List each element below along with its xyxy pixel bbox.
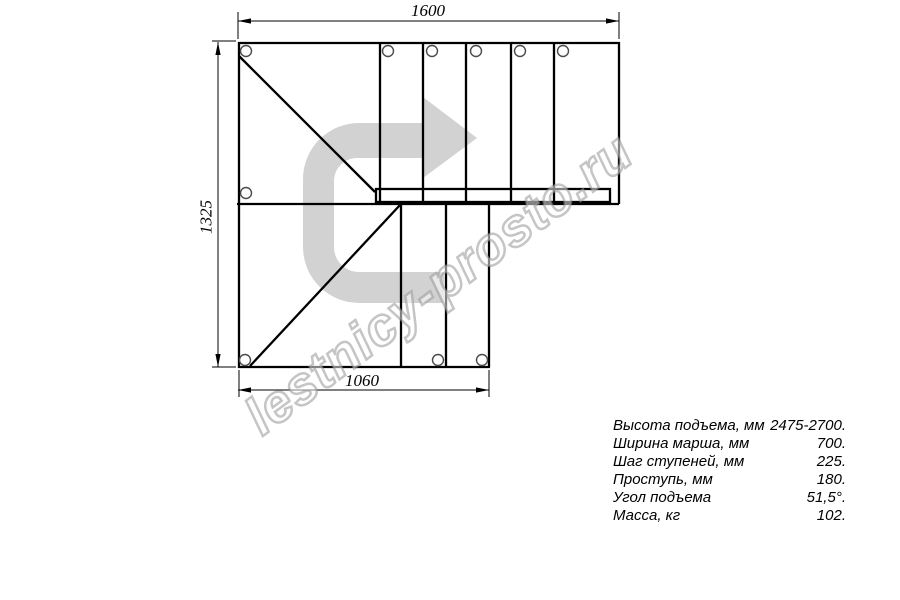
dim-arrowhead-icon	[215, 42, 220, 55]
spec-row: Угол подъема 51,5°.	[613, 489, 846, 507]
spec-value: 2475-2700.	[770, 417, 846, 435]
mounting-hole-icon	[383, 46, 394, 57]
dim-arrowhead-icon	[238, 18, 251, 23]
stair-plan-page: 1600 1325	[0, 0, 900, 600]
spec-value: 180.	[817, 471, 846, 489]
spec-value: 700.	[817, 435, 846, 453]
mounting-holes	[240, 46, 569, 366]
spec-value: 102.	[817, 507, 846, 525]
dim-left-label: 1325	[197, 200, 216, 234]
mounting-hole-icon	[241, 188, 252, 199]
spec-label: Шаг ступеней, мм	[613, 453, 744, 471]
spec-row: Масса, кг 102.	[613, 507, 846, 525]
dimension-top: 1600	[238, 1, 619, 39]
spec-label: Проступь, мм	[613, 471, 713, 489]
direction-arrow-icon	[303, 97, 477, 303]
spec-row: Проступь, мм 180.	[613, 471, 846, 489]
spec-table: Высота подъема, мм 2475-2700. Ширина мар…	[613, 417, 846, 525]
spec-value: 225.	[817, 453, 846, 471]
spec-label: Высота подъема, мм	[613, 417, 765, 435]
plan-outline	[237, 42, 619, 368]
spec-label: Ширина марша, мм	[613, 435, 749, 453]
spec-label: Угол подъема	[613, 489, 711, 507]
mounting-hole-icon	[433, 355, 444, 366]
mounting-hole-icon	[515, 46, 526, 57]
mounting-hole-icon	[558, 46, 569, 57]
spec-row: Шаг ступеней, мм 225.	[613, 453, 846, 471]
dim-bottom-label: 1060	[345, 371, 380, 390]
spec-label: Масса, кг	[613, 507, 680, 525]
dimension-left: 1325	[197, 41, 237, 367]
mounting-hole-icon	[471, 46, 482, 57]
mounting-hole-icon	[240, 355, 251, 366]
mounting-hole-icon	[241, 46, 252, 57]
dimension-bottom: 1060	[238, 370, 489, 397]
spec-row: Ширина марша, мм 700.	[613, 435, 846, 453]
spec-row: Высота подъема, мм 2475-2700.	[613, 417, 846, 435]
dim-arrowhead-icon	[238, 387, 251, 392]
dim-arrowhead-icon	[215, 354, 220, 367]
dim-arrowhead-icon	[606, 18, 619, 23]
mounting-hole-icon	[477, 355, 488, 366]
spec-value: 51,5°.	[807, 489, 846, 507]
dim-arrowhead-icon	[476, 387, 489, 392]
stringer-strip	[376, 189, 610, 202]
mounting-hole-icon	[427, 46, 438, 57]
dim-top-label: 1600	[411, 1, 446, 20]
